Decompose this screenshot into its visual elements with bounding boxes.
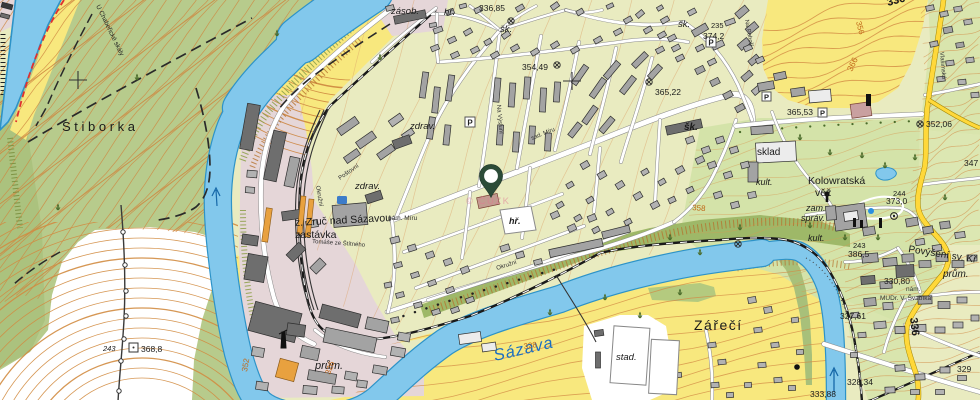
svg-text:sklad: sklad	[757, 147, 780, 158]
svg-text:336,85: 336,85	[479, 3, 505, 13]
svg-text:věž: věž	[815, 187, 831, 199]
svg-text:nám. Míru: nám. Míru	[388, 215, 418, 222]
svg-text:347: 347	[964, 158, 978, 168]
svg-text:354,49: 354,49	[522, 62, 548, 72]
svg-text:365,22: 365,22	[655, 87, 681, 97]
svg-text:prům.: prům.	[942, 268, 969, 280]
svg-text:P: P	[764, 93, 769, 102]
svg-text:327,61: 327,61	[840, 311, 866, 321]
svg-text:šk.: šk.	[500, 24, 512, 35]
svg-text:333,88: 333,88	[810, 389, 836, 399]
svg-text:nám.: nám.	[906, 286, 921, 293]
svg-text:374,2: 374,2	[703, 31, 725, 41]
svg-text:správ.: správ.	[801, 213, 825, 223]
svg-text:MUDr. V. Švabíka: MUDr. V. Švabíka	[880, 293, 931, 302]
svg-text:šk.: šk.	[678, 19, 690, 30]
svg-text:358: 358	[692, 203, 707, 213]
svg-text:stad.: stad.	[616, 352, 637, 363]
svg-text:365,53: 365,53	[787, 107, 813, 117]
svg-text:373,0: 373,0	[886, 196, 908, 206]
svg-text:zásob.: zásob.	[390, 6, 419, 17]
svg-text:P: P	[820, 109, 825, 118]
svg-text:šk.: šk.	[684, 122, 698, 133]
svg-text:243: 243	[102, 344, 116, 353]
svg-text:235: 235	[711, 21, 724, 30]
svg-text:386,5: 386,5	[848, 249, 870, 259]
svg-text:Kolowratská: Kolowratská	[808, 175, 865, 187]
svg-text:P: P	[467, 119, 473, 128]
svg-text:328: 328	[523, 340, 538, 351]
svg-text:S t i b o r k a: S t i b o r k a	[62, 119, 136, 134]
svg-text:352,06: 352,06	[926, 119, 952, 129]
svg-text:330,80: 330,80	[884, 276, 910, 286]
svg-text:Zářečí: Zářečí	[694, 317, 743, 333]
svg-text:hř.: hř.	[509, 216, 521, 226]
svg-text:kult.: kult.	[808, 233, 825, 243]
svg-text:329: 329	[957, 364, 971, 374]
svg-text:zdrav.: zdrav.	[409, 121, 435, 132]
svg-text:336: 336	[907, 317, 921, 337]
svg-text:hř.: hř.	[444, 7, 455, 18]
svg-text:© ČÚZK: © ČÚZK	[466, 196, 511, 207]
svg-text:zdrav.: zdrav.	[354, 181, 380, 192]
svg-text:328,34: 328,34	[847, 377, 873, 387]
svg-text:kult.: kult.	[756, 177, 773, 187]
svg-text:zam.: zam.	[805, 203, 826, 213]
svg-text:368,8: 368,8	[141, 344, 163, 354]
